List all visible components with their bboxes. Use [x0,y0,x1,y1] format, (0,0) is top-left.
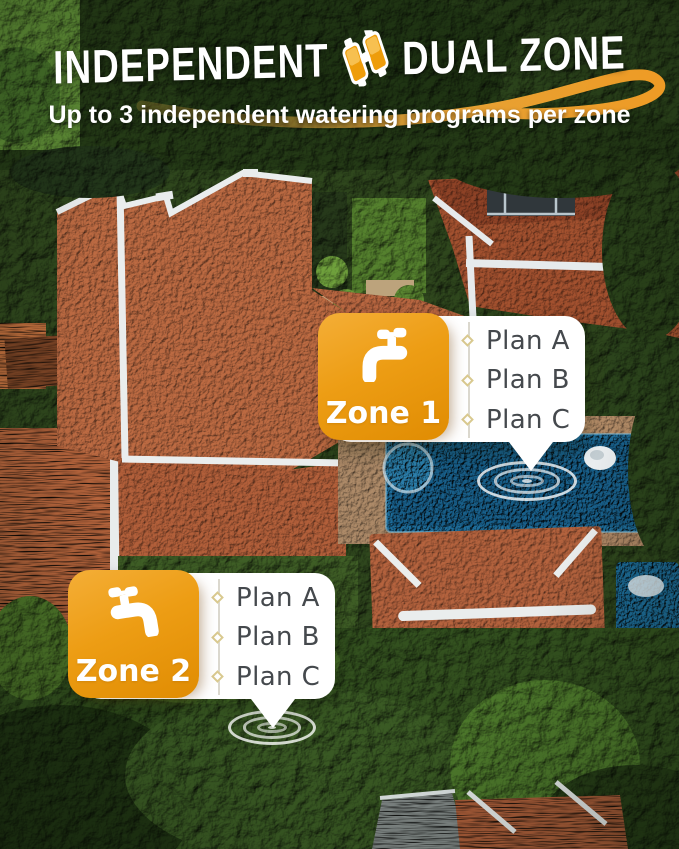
plan-row: Plan B [236,619,327,656]
headline-word-independent: INDEPENDENT [53,32,329,94]
diamond-bullet-icon [211,631,224,644]
dual-timer-icon [335,29,397,87]
speech-bubble-pointer [246,696,300,728]
plan-label: Plan C [236,662,320,692]
plan-label: Plan A [486,326,570,356]
product-banner: INDEPENDENT DUAL ZONE Up to 3 independen… [0,0,679,849]
subtitle: Up to 3 independent watering programs pe… [0,101,679,130]
faucet-icon [100,580,168,644]
zone1-callout: Plan A Plan B Plan C [318,313,598,478]
small-pond [616,562,679,638]
zone2-callout: Plan A Plan B Plan C [68,570,348,738]
zone1-card: Zone 1 [318,313,449,440]
plan-row: Plan A [236,579,327,616]
diamond-bullet-icon [211,670,224,683]
headline-block: INDEPENDENT DUAL ZONE Up to 3 independen… [0,0,679,165]
plan-label: Plan C [486,405,570,435]
zone2-card: Zone 2 [68,570,199,698]
zone2-plan-list: Plan A Plan B Plan C [218,579,327,695]
plan-row: Plan C [236,658,327,695]
zone1-plan-list: Plan A Plan B Plan C [468,322,577,438]
plan-label: Plan A [236,583,320,613]
zone2-label: Zone 2 [76,657,191,689]
plan-row: Plan B [486,362,577,399]
zone1-label: Zone 1 [326,399,441,431]
speech-bubble-pointer [504,439,558,471]
faucet-icon [354,327,414,382]
diamond-bullet-icon [211,591,224,604]
plan-label: Plan B [486,365,570,395]
plan-row: Plan A [486,322,577,359]
plan-row: Plan C [486,401,577,438]
diamond-bullet-icon [461,413,474,426]
plan-label: Plan B [236,622,320,652]
headline-word-dual-zone: DUAL ZONE [402,24,627,85]
diamond-bullet-icon [461,334,474,347]
diamond-bullet-icon [461,374,474,387]
